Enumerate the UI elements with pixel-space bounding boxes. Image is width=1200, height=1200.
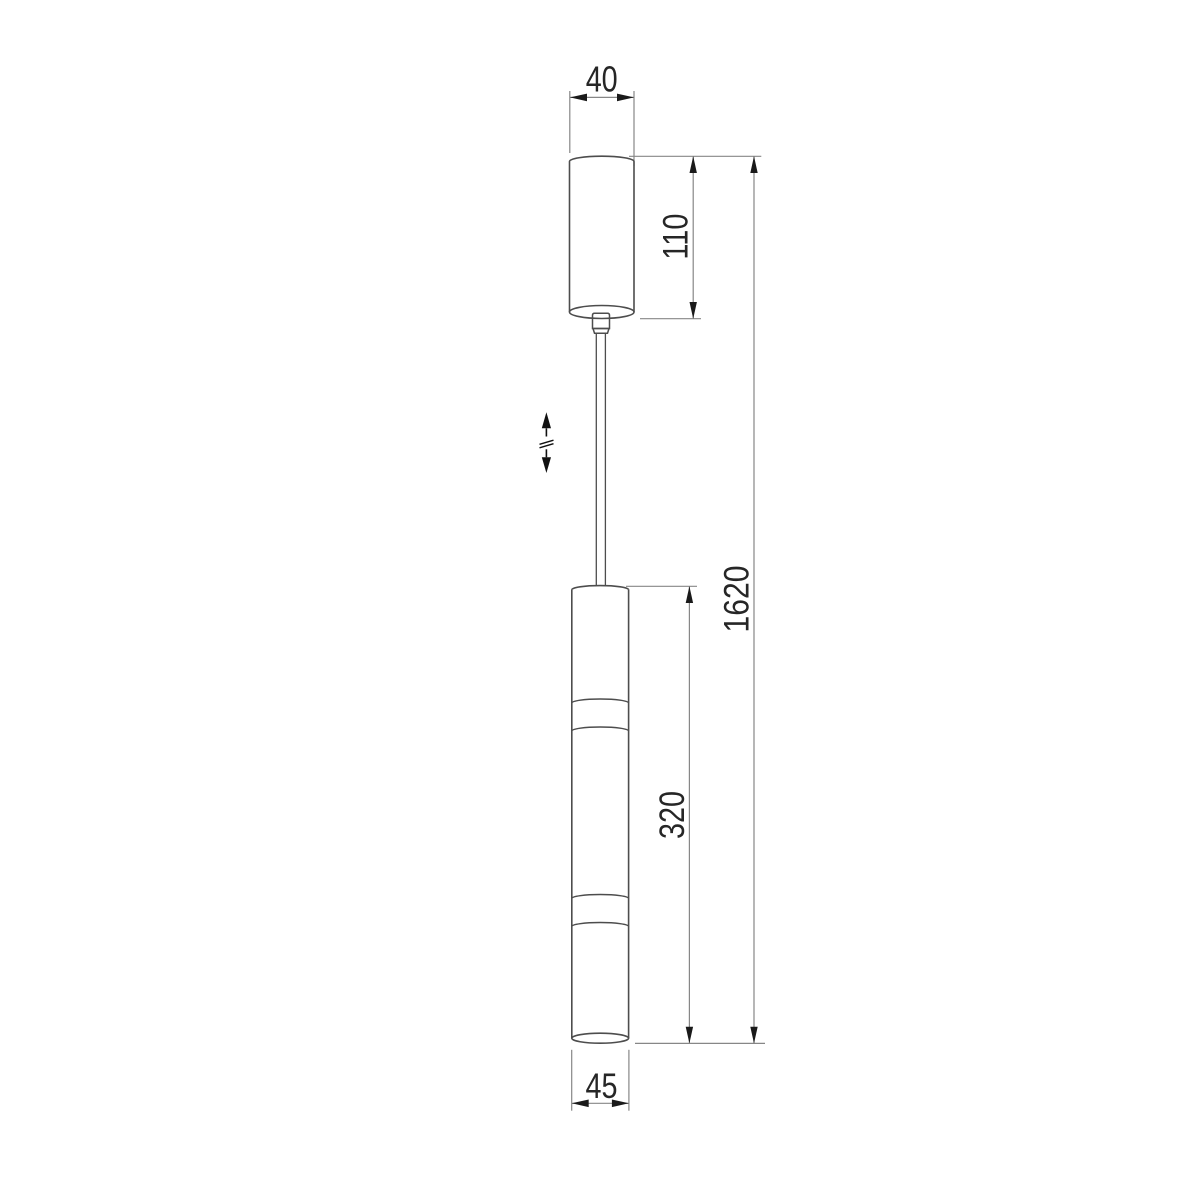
svg-text:110: 110 (657, 214, 696, 260)
svg-text:1620: 1620 (718, 566, 757, 633)
svg-text:320: 320 (653, 791, 692, 839)
svg-text:40: 40 (586, 58, 618, 99)
svg-text:45: 45 (586, 1067, 618, 1106)
